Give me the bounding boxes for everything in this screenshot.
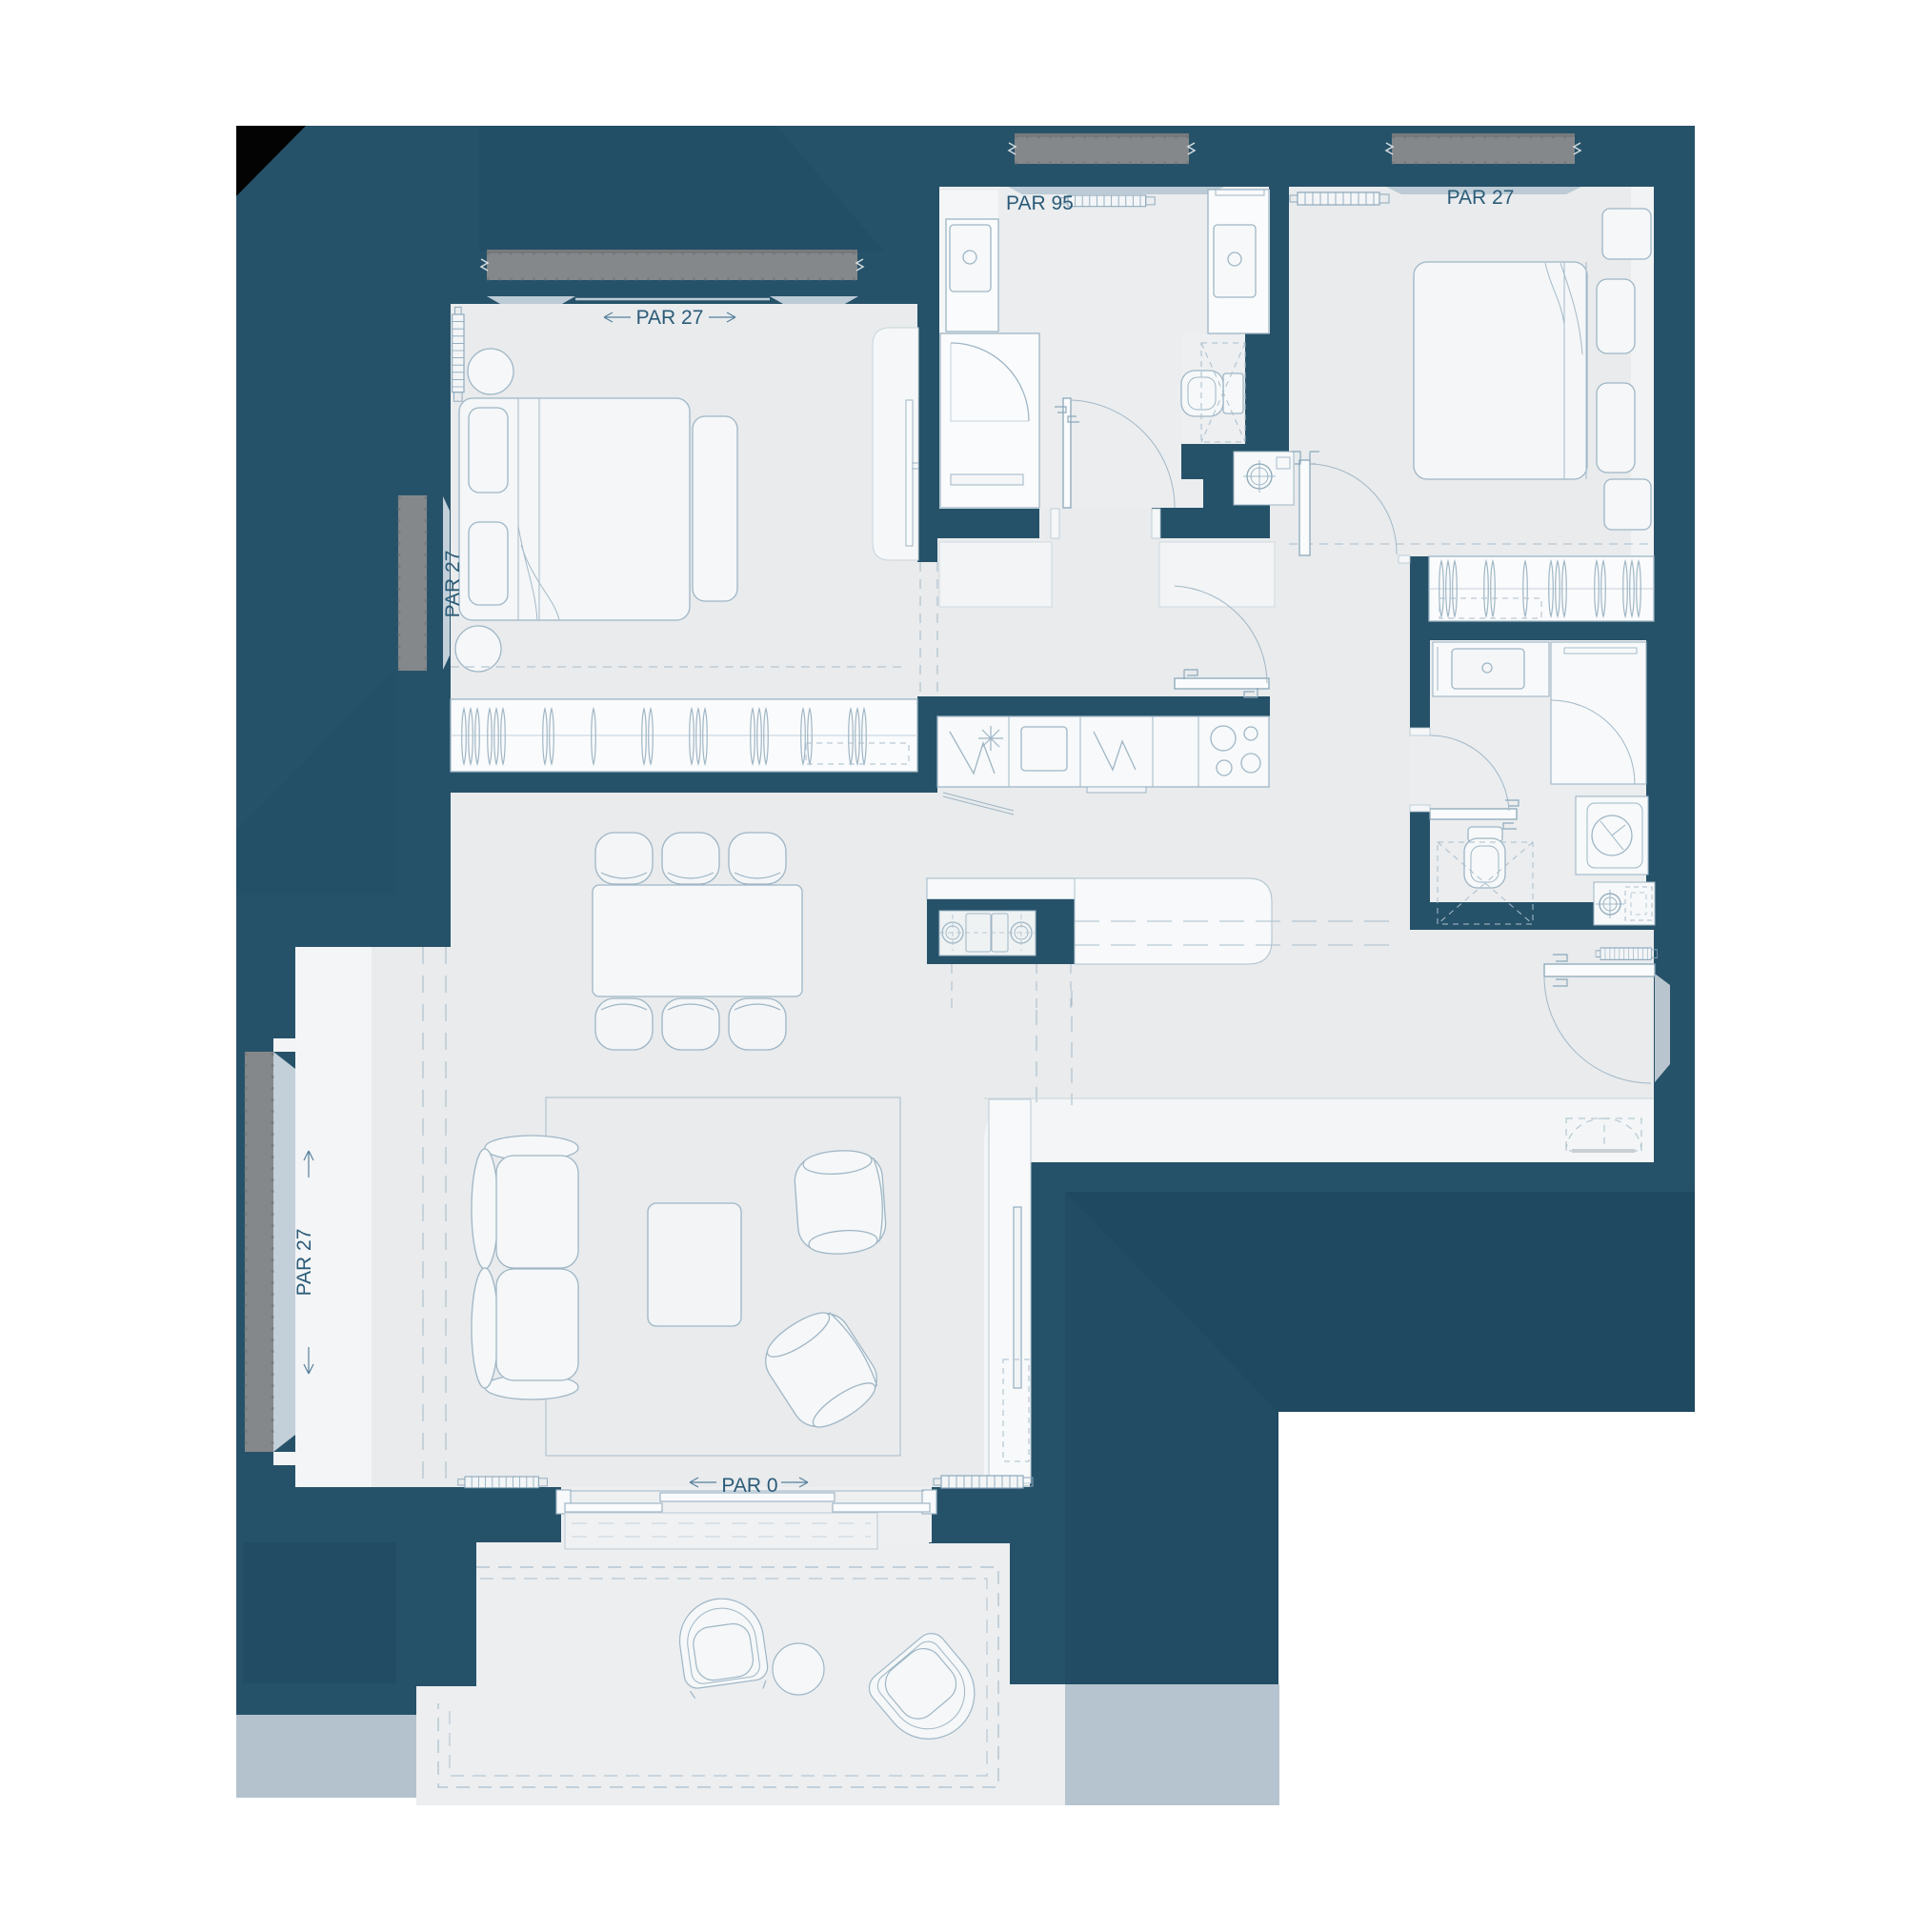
svg-text:PAR 27: PAR 27 (1447, 187, 1515, 209)
svg-text:PAR 95: PAR 95 (1006, 192, 1074, 214)
svg-text:PAR 27: PAR 27 (293, 1229, 315, 1297)
svg-text:PAR 27: PAR 27 (636, 307, 704, 329)
svg-text:PAR 0: PAR 0 (721, 1475, 777, 1497)
svg-text:PAR 27: PAR 27 (442, 551, 464, 618)
